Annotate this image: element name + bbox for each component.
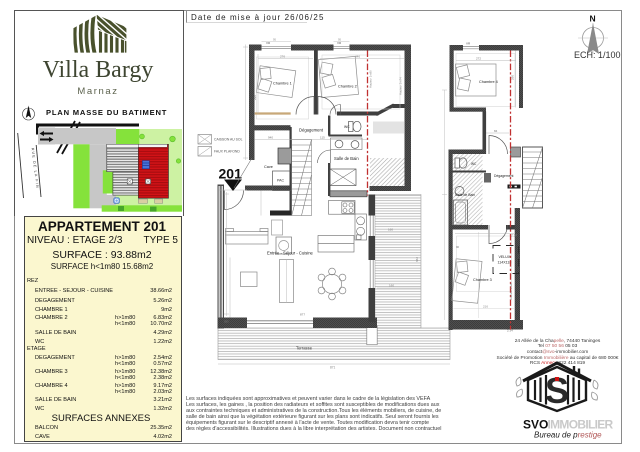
svg-text:Chambre 1: Chambre 1 — [273, 82, 292, 86]
svg-text:276: 276 — [280, 55, 285, 59]
svg-text:160: 160 — [389, 284, 394, 288]
svg-text:95: 95 — [273, 38, 276, 42]
svg-text:Salle de Bain: Salle de Bain — [334, 156, 359, 161]
svg-text:Chambre 3: Chambre 3 — [473, 278, 492, 282]
svg-text:VELUX: VELUX — [499, 255, 511, 259]
svg-text:662: 662 — [415, 257, 419, 262]
svg-text:VR: VR — [466, 42, 471, 46]
svg-text:Chambre 2: Chambre 2 — [338, 85, 357, 89]
svg-text:446: 446 — [355, 55, 360, 59]
svg-text:CAISSON AU SOL: CAISSON AU SOL — [214, 138, 243, 142]
svg-text:Hauteur 2m74: Hauteur 2m74 — [399, 77, 403, 95]
svg-text:216: 216 — [483, 305, 488, 309]
svg-text:201: 201 — [219, 166, 243, 182]
svg-text:877: 877 — [300, 313, 305, 317]
svg-text:272: 272 — [476, 57, 481, 61]
svg-text:PAC: PAC — [277, 179, 285, 183]
svg-text:FAUX PLAFOND: FAUX PLAFOND — [214, 150, 240, 154]
svg-text:90: 90 — [456, 245, 460, 249]
svg-text:Entrée - Séjour - Cuisine: Entrée - Séjour - Cuisine — [267, 251, 314, 256]
svg-text:115: 115 — [320, 136, 325, 140]
svg-text:Dégagement: Dégagement — [494, 174, 513, 178]
svg-text:114X118: 114X118 — [498, 261, 512, 265]
svg-text:Terrasse: Terrasse — [296, 346, 313, 351]
svg-text:WC: WC — [471, 162, 477, 166]
svg-text:Cave: Cave — [264, 165, 273, 169]
svg-text:850: 850 — [224, 320, 229, 324]
svg-text:84: 84 — [494, 129, 498, 133]
svg-text:296: 296 — [253, 95, 257, 100]
svg-text:940: 940 — [268, 136, 273, 140]
svg-text:871: 871 — [330, 366, 336, 370]
svg-text:Salle de Bain: Salle de Bain — [455, 193, 475, 197]
svg-text:Hauteur 1m47: Hauteur 1m47 — [509, 282, 513, 300]
svg-text:Hauteur 1m80: Hauteur 1m80 — [369, 70, 373, 88]
svg-text:2.34: 2.34 — [511, 234, 517, 238]
svg-text:Dégagement: Dégagement — [299, 128, 324, 133]
svg-text:160: 160 — [388, 228, 393, 232]
svg-text:WC: WC — [344, 125, 350, 129]
svg-text:2.34: 2.34 — [507, 329, 513, 333]
svg-text:Chambre 4: Chambre 4 — [479, 80, 498, 84]
svg-text:290: 290 — [511, 75, 515, 80]
